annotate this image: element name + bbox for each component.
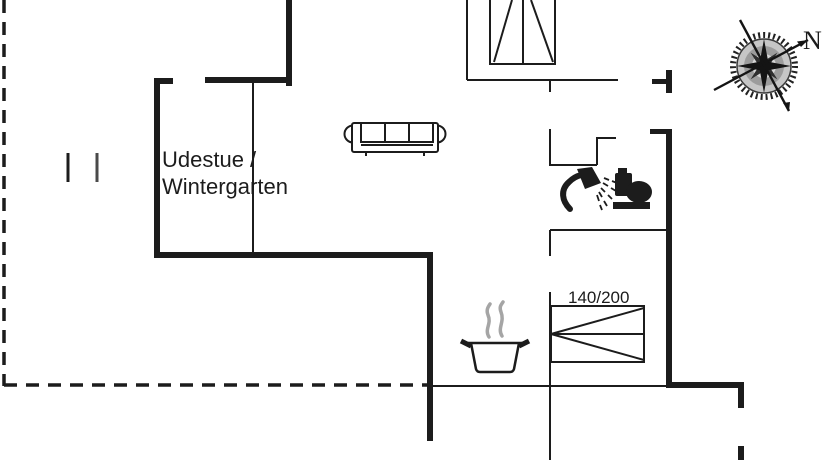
bed-icon — [551, 306, 644, 362]
sofa-icon — [345, 123, 446, 156]
steam-icon — [487, 302, 503, 337]
compass-north-label: N — [803, 26, 822, 55]
room-label-line1: Udestue / — [162, 147, 257, 172]
room-label-line2: Wintergarten — [162, 174, 288, 199]
shower-icon — [563, 167, 617, 210]
window-icon — [490, 0, 555, 65]
terrace-opening-ticks — [68, 153, 97, 182]
floor-plan-drawing: 140/200 N Udestue / — [0, 0, 834, 460]
bed-size-label: 140/200 — [568, 288, 629, 307]
toilet-icon — [613, 168, 652, 209]
walls-thin — [253, 0, 671, 460]
cooking-pot-icon — [461, 341, 529, 372]
floor-plan-canvas: 140/200 N Udestue / — [0, 0, 834, 460]
compass-rose-icon — [714, 20, 808, 111]
room-label: Udestue / Wintergarten — [162, 147, 288, 199]
